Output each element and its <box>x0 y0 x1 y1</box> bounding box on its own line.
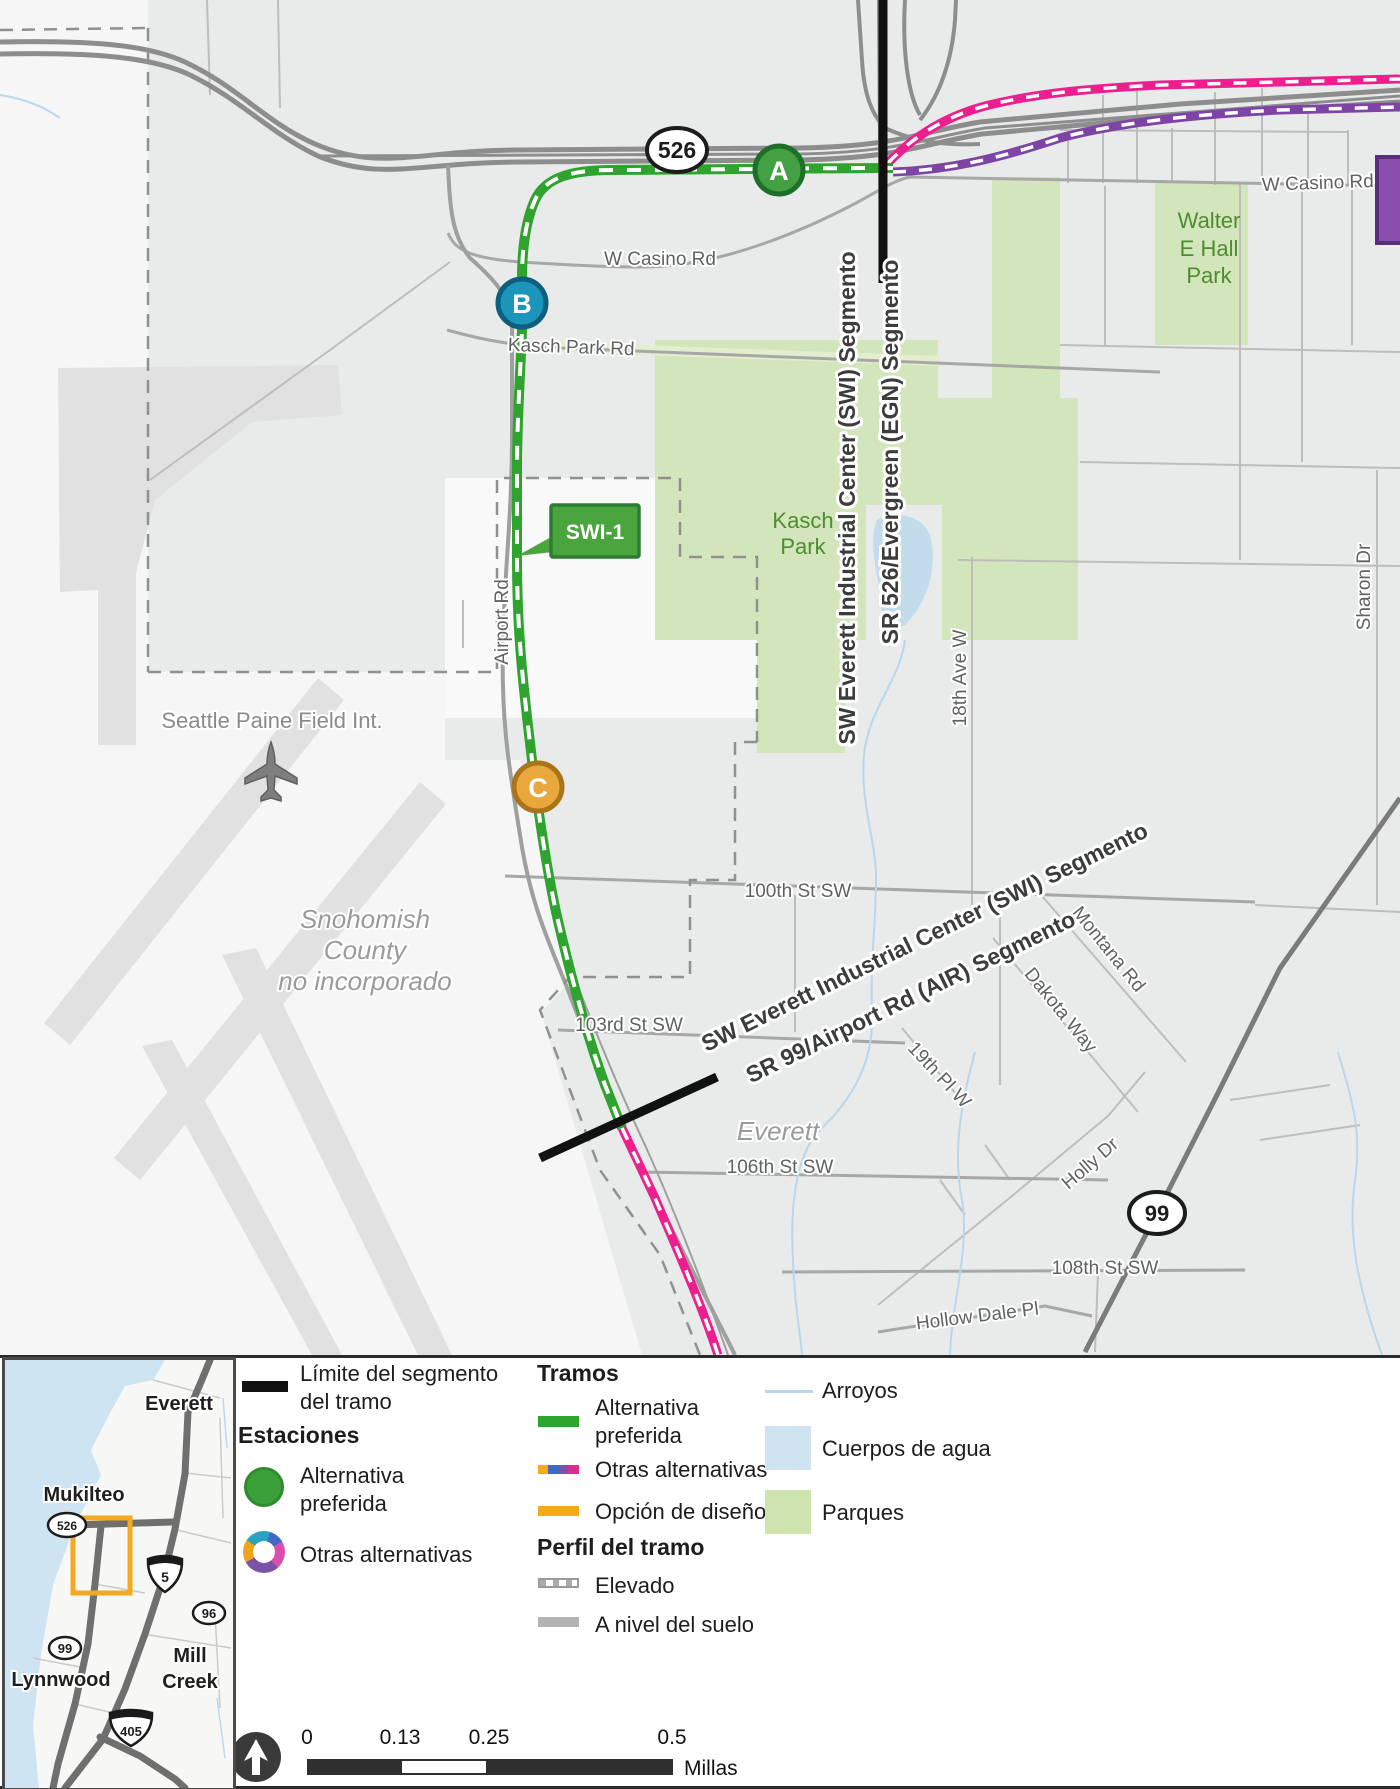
inset-sr526-label: 526 <box>57 1519 77 1533</box>
station-a-label: A <box>769 156 789 186</box>
station-b[interactable]: B <box>498 279 546 327</box>
scale-0: 0 <box>301 1726 313 1750</box>
main-map-canvas[interactable]: SWI-1 526 99 A B C W Casino <box>0 0 1400 1355</box>
road-label-108th-st: 108th St SW <box>1052 1258 1159 1279</box>
road-label-18th-ave: 18th Ave W <box>950 630 971 727</box>
legend-station-preferred-icon <box>244 1467 284 1507</box>
segment-label-egn: SR 526/Evergreen (EGN) Segmento <box>877 260 903 645</box>
legend-limite-swatch <box>242 1381 288 1392</box>
legend-station-preferred-label: Alternativapreferida <box>300 1462 404 1518</box>
road-label-sharon-dr: Sharon Dr <box>1354 543 1375 630</box>
legend-nivel-swatch <box>538 1617 579 1627</box>
legend-agua-swatch <box>765 1426 811 1470</box>
legend-parques-swatch <box>765 1490 811 1534</box>
road-label-w-casino-east: W Casino Rd <box>1262 171 1375 196</box>
sr526-shield-label: 526 <box>658 137 696 163</box>
transit-segment-map-page: SWI-1 526 99 A B C W Casino <box>0 0 1400 1789</box>
road-label-106th-st: 106th St SW <box>727 1157 834 1178</box>
kasch-park-label-1: Kasch <box>772 508 833 533</box>
legend-tramos-header: Tramos <box>537 1360 619 1387</box>
inset-lynnwood-label: Lynnwood <box>11 1669 110 1691</box>
road-label-w-casino-west: W Casino Rd <box>604 249 716 270</box>
legend-tramo-design-label: Opción de diseño <box>595 1498 766 1526</box>
legend-tramo-preferred-label: Alternativapreferida <box>595 1394 699 1450</box>
purple-station-box[interactable] <box>1377 157 1400 243</box>
inset-mukilteo-label: Mukilteo <box>43 1484 124 1506</box>
inset-everett-label: Everett <box>145 1393 213 1415</box>
paine-field-label: Seattle Paine Field Int. <box>161 708 382 733</box>
legend-tramo-preferred-swatch <box>538 1416 579 1427</box>
inset-overview-map[interactable]: 526 5 96 99 405 Everett Mukilteo Lynnwoo… <box>2 1357 236 1789</box>
sr99-shield: 99 <box>1129 1192 1185 1234</box>
legend-perfil-header: Perfil del tramo <box>537 1534 704 1561</box>
legend-station-other-label: Otras alternativas <box>300 1541 472 1569</box>
station-c-label: C <box>528 773 548 803</box>
scale-05: 0.5 <box>657 1726 686 1750</box>
legend-elevado-swatch <box>538 1578 579 1588</box>
legend-arroyos-label: Arroyos <box>822 1377 898 1405</box>
inset-sr96-label: 96 <box>202 1606 216 1621</box>
inset-i5-label: 5 <box>161 1569 169 1585</box>
scale-025: 0.25 <box>469 1726 510 1750</box>
snohomish-label-1: Snohomish <box>300 904 430 934</box>
legend-estaciones-header: Estaciones <box>238 1422 359 1449</box>
segment-label-swi-top: SW Everett Industrial Center (SWI) Segme… <box>834 251 860 744</box>
station-c[interactable]: C <box>514 763 562 811</box>
road-label-kasch-park-rd: Kasch Park Rd <box>507 335 634 360</box>
road-label-100th-st: 100th St SW <box>745 881 852 902</box>
legend-nivel-label: A nivel del suelo <box>595 1611 754 1639</box>
legend-tramo-other-swatch <box>538 1465 579 1474</box>
inset-mill-creek-label-1: Mill <box>173 1645 206 1667</box>
legend-arroyos-swatch <box>765 1390 813 1393</box>
legend-station-other-icon <box>243 1531 285 1573</box>
snohomish-label-3: no incorporado <box>278 966 451 996</box>
sr526-shield: 526 <box>647 128 707 172</box>
108th-st-road <box>782 1270 1245 1272</box>
sr99-shield-label: 99 <box>1145 1201 1169 1226</box>
legend-tramo-other-label: Otras alternativas <box>595 1456 767 1484</box>
walter-hall-label-3: Park <box>1186 263 1232 288</box>
scale-unit: Millas <box>684 1757 738 1781</box>
station-a[interactable]: A <box>755 146 803 194</box>
inset-sr96-shield: 96 <box>193 1602 225 1624</box>
inset-sr99-label: 99 <box>58 1641 72 1656</box>
inset-mill-creek-label-2: Creek <box>162 1671 218 1693</box>
legend-agua-label: Cuerpos de agua <box>822 1435 991 1463</box>
scale-bar <box>307 1759 673 1775</box>
walter-hall-label-2: E Hall <box>1180 236 1239 261</box>
walter-hall-label-1: Walter <box>1178 208 1241 233</box>
road-label-103rd-st: 103rd St SW <box>575 1015 683 1036</box>
everett-label: Everett <box>737 1116 821 1146</box>
inset-map-svg: 526 5 96 99 405 Everett Mukilteo Lynnwoo… <box>5 1360 233 1788</box>
station-b-label: B <box>512 289 532 319</box>
inset-sr526-shield: 526 <box>48 1513 86 1537</box>
legend-elevado-label: Elevado <box>595 1572 675 1600</box>
legend-tramo-design-swatch <box>538 1506 579 1516</box>
inset-sr99-shield: 99 <box>49 1637 81 1659</box>
road-label-airport-rd: Airport Rd <box>492 579 513 665</box>
inset-i405-label: 405 <box>120 1724 142 1739</box>
legend-limite-label: Límite del segmentodel tramo <box>300 1360 498 1416</box>
main-map-svg: SWI-1 526 99 A B C W Casino <box>0 0 1400 1355</box>
swi1-label: SWI-1 <box>566 521 625 544</box>
snohomish-label-2: County <box>324 935 408 965</box>
scale-013: 0.13 <box>380 1726 421 1750</box>
legend-parques-label: Parques <box>822 1499 904 1527</box>
kasch-park-label-2: Park <box>780 534 826 559</box>
